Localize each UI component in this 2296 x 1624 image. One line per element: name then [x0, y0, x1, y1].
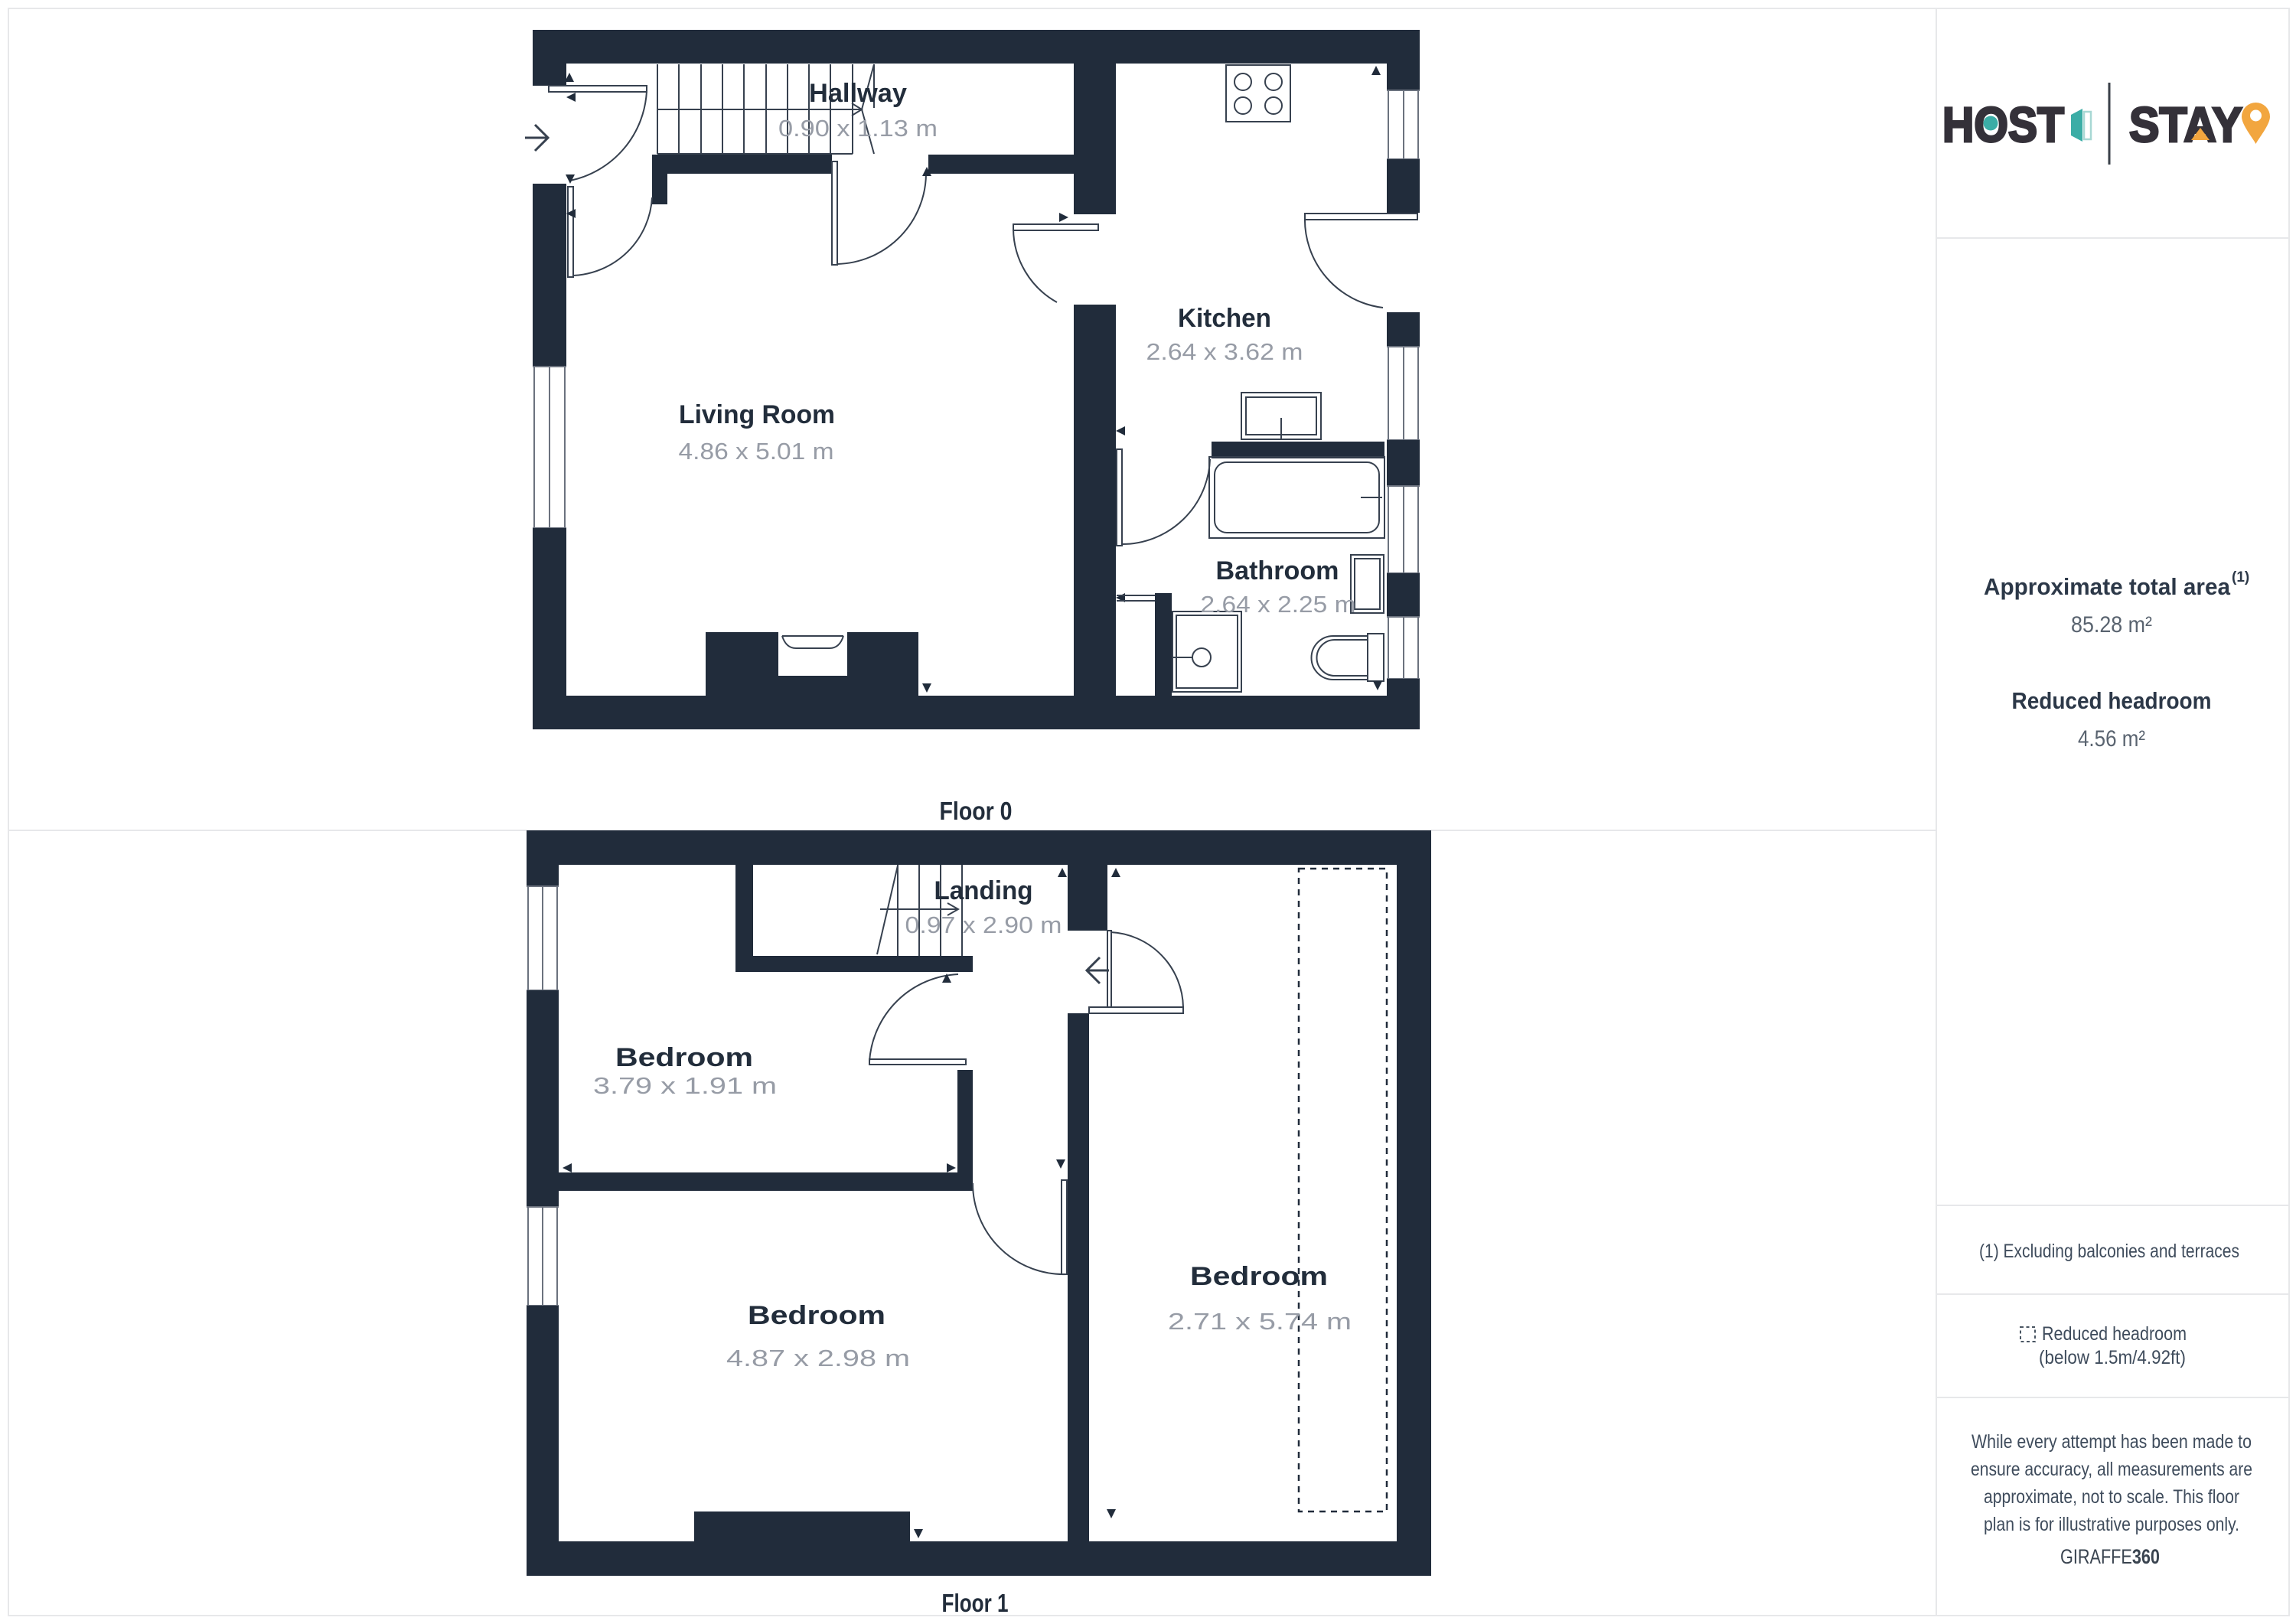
- svg-text:Living Room: Living Room: [679, 400, 835, 429]
- svg-text:Landing: Landing: [934, 876, 1033, 905]
- svg-text:85.28 m²: 85.28 m²: [2071, 612, 2152, 638]
- svg-text:3.79 x 1.91 m: 3.79 x 1.91 m: [593, 1072, 777, 1099]
- svg-text:approximate, not to scale. Thi: approximate, not to scale. This floor: [1984, 1486, 2239, 1508]
- svg-text:Bedroom: Bedroom: [748, 1301, 885, 1330]
- svg-text:0.90 x 1.13 m: 0.90 x 1.13 m: [778, 115, 938, 142]
- svg-text:Kitchen: Kitchen: [1178, 304, 1271, 333]
- svg-text:2.64 x 3.62 m: 2.64 x 3.62 m: [1146, 338, 1303, 365]
- svg-text:2.64 x 2.25 m: 2.64 x 2.25 m: [1201, 591, 1356, 618]
- svg-text:Reduced headroom: Reduced headroom: [2012, 687, 2212, 714]
- svg-text:(1) Excluding balconies and te: (1) Excluding balconies and terraces: [1979, 1241, 2239, 1262]
- svg-text:While every attempt has been m: While every attempt has been made to: [1971, 1431, 2252, 1453]
- svg-text:GIRAFFE360: GIRAFFE360: [2060, 1545, 2160, 1568]
- svg-text:4.86 x 5.01 m: 4.86 x 5.01 m: [679, 438, 834, 465]
- svg-text:Bedroom: Bedroom: [615, 1043, 753, 1072]
- svg-text:4.56 m²: 4.56 m²: [2078, 726, 2145, 752]
- svg-text:2.71 x 5.74 m: 2.71 x 5.74 m: [1168, 1308, 1352, 1335]
- svg-text:0.97 x 2.90 m: 0.97 x 2.90 m: [905, 911, 1062, 938]
- svg-text:plan is for illustrative purpo: plan is for illustrative purposes only.: [1984, 1514, 2239, 1535]
- svg-text:Bathroom: Bathroom: [1216, 556, 1339, 585]
- svg-text:Reduced headroom: Reduced headroom: [2042, 1323, 2187, 1345]
- svg-text:(below 1.5m/4.92ft): (below 1.5m/4.92ft): [2039, 1347, 2186, 1368]
- svg-text:Bedroom: Bedroom: [1190, 1262, 1328, 1291]
- svg-text:STAY: STAY: [2129, 97, 2242, 152]
- svg-text:Floor 0: Floor 0: [940, 797, 1013, 825]
- svg-text:4.87 x 2.98 m: 4.87 x 2.98 m: [726, 1345, 910, 1371]
- svg-text:Approximate total area: Approximate total area: [1984, 573, 2231, 600]
- svg-text:(1): (1): [2232, 569, 2249, 585]
- svg-text:Floor 1: Floor 1: [942, 1589, 1009, 1617]
- svg-text:HOST: HOST: [1942, 97, 2064, 152]
- svg-text:Hallway: Hallway: [809, 79, 907, 108]
- svg-text:ensure accuracy, all measureme: ensure accuracy, all measurements are: [1971, 1459, 2252, 1480]
